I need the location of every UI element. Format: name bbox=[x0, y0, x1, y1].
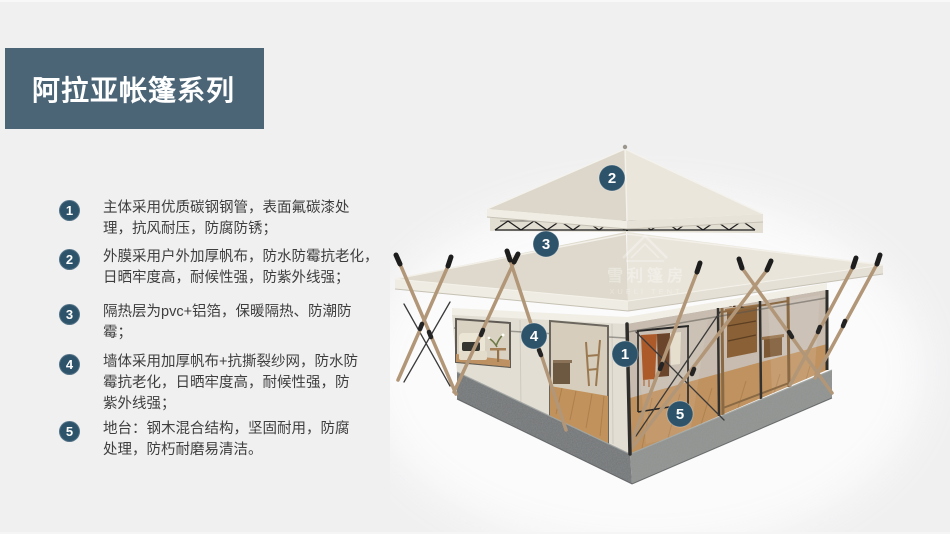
feature-item-5: 5 地台：钢木混合结构，坚固耐用，防腐 处理，防朽耐磨易清洁。 bbox=[59, 421, 379, 461]
feature-number-badge: 5 bbox=[59, 421, 80, 442]
top-roof bbox=[487, 145, 763, 229]
marker-canvas-wall: 4 bbox=[521, 323, 547, 349]
feature-number-badge: 1 bbox=[59, 200, 80, 221]
watermark-cn: 雪利篷房 bbox=[607, 266, 687, 285]
watermark-en: XUELI TENT bbox=[609, 287, 682, 296]
tent-render: 雪利篷房 XUELI TENT 2 3 4 1 5 bbox=[390, 136, 950, 534]
page-title-box: 阿拉亚帐篷系列 bbox=[5, 48, 264, 129]
feature-text: 外膜采用户外加厚帆布，防水防霉抗老化， 日晒牢度高，耐候性强，防紫外线强； bbox=[103, 247, 379, 289]
feature-item-3: 3 隔热层为pvc+铝箔，保暖隔热、防潮防 霉； bbox=[59, 304, 379, 344]
svg-text:3: 3 bbox=[542, 236, 550, 253]
feature-text: 主体采用优质碳钢钢管，表面氟碳漆处 理，抗风耐压，防腐防锈； bbox=[103, 198, 379, 240]
svg-text:1: 1 bbox=[621, 346, 629, 363]
marker-steel-frame: 1 bbox=[612, 341, 638, 367]
marker-main-roof: 3 bbox=[533, 231, 559, 257]
feature-item-4: 4 墙体采用加厚帆布+抗撕裂纱网，防水防 霉抗老化，日晒牢度高，耐候性强，防 紫… bbox=[59, 354, 379, 415]
marker-top-roof: 2 bbox=[599, 165, 625, 191]
feature-text: 地台：钢木混合结构，坚固耐用，防腐 处理，防朽耐磨易清洁。 bbox=[103, 419, 379, 461]
feature-number-badge: 4 bbox=[59, 354, 80, 375]
svg-text:2: 2 bbox=[608, 170, 616, 187]
feature-number-badge: 2 bbox=[59, 249, 80, 270]
feature-item-1: 1 主体采用优质碳钢钢管，表面氟碳漆处 理，抗风耐压，防腐防锈； bbox=[59, 200, 379, 240]
tent-illustration: 雪利篷房 XUELI TENT 2 3 4 1 5 bbox=[390, 136, 950, 534]
marker-deck-platform: 5 bbox=[667, 401, 693, 427]
feature-text: 隔热层为pvc+铝箔，保暖隔热、防潮防 霉； bbox=[103, 302, 379, 344]
feature-text: 墙体采用加厚帆布+抗撕裂纱网，防水防 霉抗老化，日晒牢度高，耐候性强，防 紫外线… bbox=[103, 352, 379, 415]
svg-text:4: 4 bbox=[530, 328, 539, 345]
feature-item-2: 2 外膜采用户外加厚帆布，防水防霉抗老化， 日晒牢度高，耐候性强，防紫外线强； bbox=[59, 249, 379, 289]
feature-number-badge: 3 bbox=[59, 304, 80, 325]
slide: 阿拉亚帐篷系列 1 主体采用优质碳钢钢管，表面氟碳漆处 理，抗风耐压，防腐防锈；… bbox=[0, 0, 950, 534]
page-title: 阿拉亚帐篷系列 bbox=[32, 69, 235, 109]
svg-text:5: 5 bbox=[676, 406, 684, 423]
